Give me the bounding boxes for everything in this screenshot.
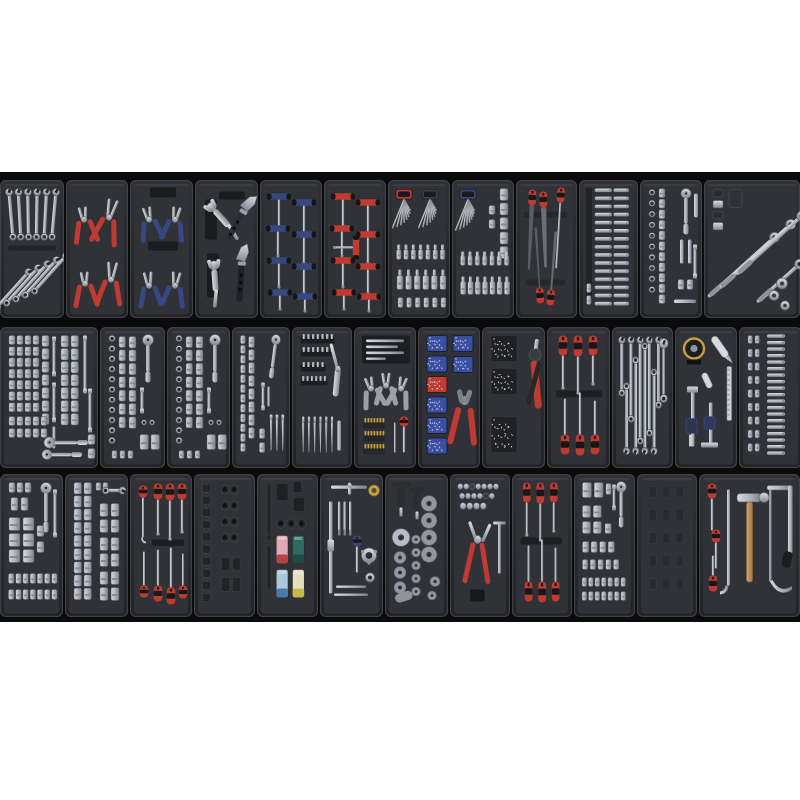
tray-illustration-breaker-bar-set [704, 180, 800, 318]
tray-engineers-file-set [516, 180, 577, 318]
tray-deep-socket-set [65, 474, 128, 617]
tray-bit-holders-and-nut-riveter [292, 327, 352, 468]
tray-illustration-impact-adaptors-colour-sockets [257, 474, 318, 617]
tray-combination-spanner-rack [612, 327, 673, 468]
tray-adjustable-wrenches-locking-pliers [195, 180, 258, 318]
tray-bit-assortment [739, 327, 800, 468]
tray-socket-and-bit-tray [574, 474, 635, 617]
tray-socket-and-ratchet-assortment [0, 474, 63, 617]
tray-long-bit-socket-set [579, 180, 638, 318]
tray-illustration-screwdriver-set-2 [512, 474, 572, 617]
tray-illustration-rivet-assortment-and-gun [482, 327, 545, 468]
tray-illustration-impact-socket-set [194, 474, 255, 617]
tray-combination-spanner-set [0, 180, 64, 318]
tray-rivet-assortment-and-gun [482, 327, 545, 468]
tray-illustration-socket-and-bit-tray [574, 474, 635, 617]
tray-fittings-and-brake-pliers [450, 474, 510, 617]
tray-illustration-t-handle-hex-keys-red [324, 180, 386, 318]
tray-t-handle-hex-keys-red [324, 180, 386, 318]
tray-brake-caliper-rewind-kit [385, 474, 448, 617]
tray-illustration-large-socket-set [0, 327, 98, 468]
tray-illustration-picks-hooks-screwdrivers [130, 474, 192, 617]
tray-illustration-t-handle-hex-keys-blue [260, 180, 322, 318]
tray-measuring-and-cutting-tools [675, 327, 737, 468]
tray-illustration-sockets-ratchet-punches [232, 327, 290, 468]
tray-quarter-drive-socket-set [100, 327, 165, 468]
photo-black-backdrop [0, 172, 800, 622]
tray-sockets-ratchet-punches [232, 327, 290, 468]
tray-screwdriver-set [547, 327, 610, 468]
tray-illustration-tap-and-die-set [320, 474, 383, 617]
tray-impact-adaptors-colour-sockets [257, 474, 318, 617]
tray-pliers-set-red [66, 180, 128, 318]
tray-screwdriver-set-2 [512, 474, 572, 617]
tray-empty-tray [637, 474, 697, 617]
tray-illustration-fittings-and-brake-pliers [450, 474, 510, 617]
tray-illustration-combination-spanner-rack [612, 327, 673, 468]
tray-terminals-and-crimping-tool [418, 327, 480, 468]
tray-illustration-hex-key-and-bit-socket-set [388, 180, 450, 318]
tray-illustration-brake-caliper-rewind-kit [385, 474, 448, 617]
tray-illustration-deep-socket-set [65, 474, 128, 617]
tray-illustration-hex-keys-sockets-bits [452, 180, 514, 318]
tray-large-socket-set [0, 327, 98, 468]
tray-mini-pliers-needle-files-bits [354, 327, 416, 468]
tray-illustration-circlip-pliers-set [130, 180, 193, 318]
tray-illustration-hammer-hacksaw-pry-bar [699, 474, 800, 617]
tray-impact-socket-set [194, 474, 255, 617]
tray-illustration-pliers-set-red [66, 180, 128, 318]
tray-illustration-empty-tray [637, 474, 697, 617]
tray-illustration-three-eighth-drive-socket-set [167, 327, 230, 468]
tray-hex-key-and-bit-socket-set [388, 180, 450, 318]
tray-illustration-engineers-file-set [516, 180, 577, 318]
tray-illustration-terminals-and-crimping-tool [418, 327, 480, 468]
tray-illustration-measuring-and-cutting-tools [675, 327, 737, 468]
tray-picks-hooks-screwdrivers [130, 474, 192, 617]
tray-circlip-pliers-set [130, 180, 193, 318]
tray-illustration-adjustable-wrenches-locking-pliers [195, 180, 258, 318]
tray-illustration-socket-rail-and-ratchet [640, 180, 702, 318]
tray-hammer-hacksaw-pry-bar [699, 474, 800, 617]
tray-t-handle-hex-keys-blue [260, 180, 322, 318]
tray-illustration-combination-spanner-set [0, 180, 64, 318]
tray-illustration-quarter-drive-socket-set [100, 327, 165, 468]
tray-illustration-screwdriver-set [547, 327, 610, 468]
tray-illustration-bit-assortment [739, 327, 800, 468]
tool-drawer-photo-canvas [0, 0, 800, 800]
tray-three-eighth-drive-socket-set [167, 327, 230, 468]
tray-illustration-socket-and-ratchet-assortment [0, 474, 63, 617]
tray-illustration-mini-pliers-needle-files-bits [354, 327, 416, 468]
tray-illustration-bit-holders-and-nut-riveter [292, 327, 352, 468]
tray-illustration-long-bit-socket-set [579, 180, 638, 318]
tray-hex-keys-sockets-bits [452, 180, 514, 318]
tray-tap-and-die-set [320, 474, 383, 617]
tray-breaker-bar-set [704, 180, 800, 318]
tray-socket-rail-and-ratchet [640, 180, 702, 318]
